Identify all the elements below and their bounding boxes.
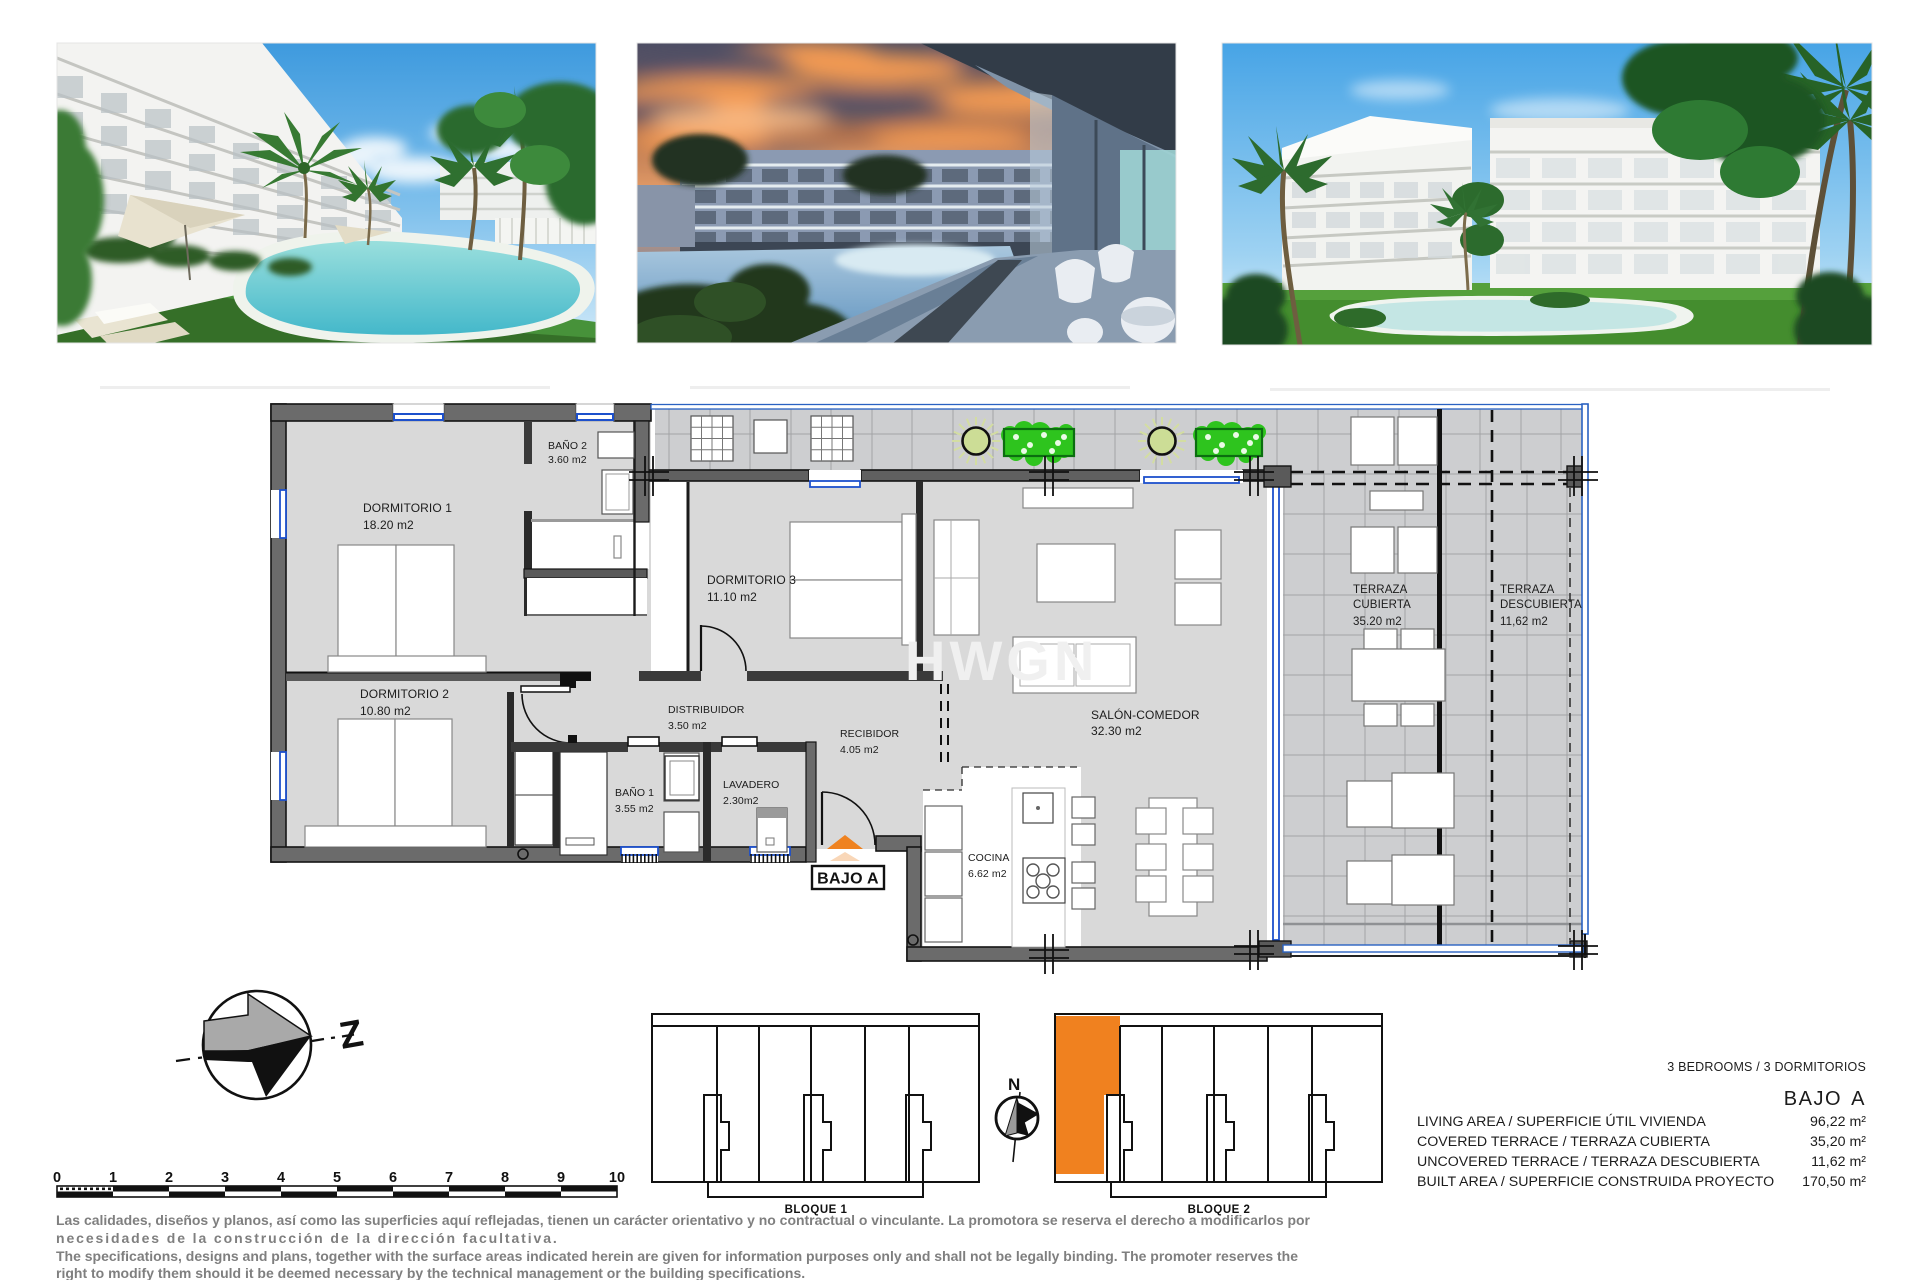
svg-text:The specifications, designs an: The specifications, designs and plans, t… [56,1248,1298,1264]
svg-text:11,62 m²: 11,62 m² [1811,1154,1866,1170]
svg-text:BAÑO 2: BAÑO 2 [548,439,587,452]
svg-text:35.20 m2: 35.20 m2 [1353,616,1402,628]
svg-text:TERRAZA: TERRAZA [1500,584,1555,596]
svg-text:CUBIERTA: CUBIERTA [1353,599,1411,611]
svg-text:LAVADERO: LAVADERO [723,779,779,791]
svg-text:COCINA: COCINA [968,852,1009,864]
svg-text:10.80 m2: 10.80 m2 [360,704,411,718]
svg-text:SALÓN-COMEDOR: SALÓN-COMEDOR [1091,707,1200,722]
svg-text:0: 0 [53,1170,61,1186]
svg-text:32.30 m2: 32.30 m2 [1091,724,1142,738]
svg-text:11.10 m2: 11.10 m2 [707,590,757,604]
svg-text:3.55 m2: 3.55 m2 [615,803,654,815]
svg-text:2.30m2: 2.30m2 [723,795,759,807]
svg-text:Las calidades, diseños y plano: Las calidades, diseños y planos, así com… [56,1212,1311,1228]
svg-text:10: 10 [609,1170,625,1186]
svg-text:N: N [1008,1075,1020,1094]
svg-text:DORMITORIO 1: DORMITORIO 1 [363,501,452,515]
svg-text:necesidades de la construcción: necesidades de la construcción de la dir… [56,1230,559,1246]
svg-text:6: 6 [389,1170,397,1186]
svg-text:3: 3 [221,1170,229,1186]
svg-text:BAJO A: BAJO A [1784,1088,1866,1110]
svg-text:BAÑO 1: BAÑO 1 [615,786,654,799]
svg-text:7: 7 [445,1170,453,1186]
svg-text:9: 9 [557,1170,565,1186]
svg-text:UNCOVERED TERRACE / TERRAZA DE: UNCOVERED TERRACE / TERRAZA DESCUBIERTA [1417,1154,1760,1170]
svg-text:HWGN: HWGN [905,629,1098,692]
svg-text:18.20 m2: 18.20 m2 [363,518,414,532]
svg-text:11,62 m2: 11,62 m2 [1500,616,1548,628]
svg-text:96,22 m²: 96,22 m² [1810,1114,1866,1130]
svg-text:2: 2 [165,1170,173,1186]
svg-text:RECIBIDOR: RECIBIDOR [840,728,900,740]
svg-text:3 BEDROOMS / 3 DORMITORIOS: 3 BEDROOMS / 3 DORMITORIOS [1667,1060,1866,1074]
svg-text:DESCUBIERTA: DESCUBIERTA [1500,599,1582,611]
svg-text:6.62 m2: 6.62 m2 [968,868,1007,880]
svg-text:TERRAZA: TERRAZA [1353,584,1408,596]
svg-text:3.60 m2: 3.60 m2 [548,454,587,466]
svg-text:170,50 m²: 170,50 m² [1802,1174,1866,1190]
svg-text:right to modify them should it: right to modify them should it be deemed… [56,1265,805,1280]
svg-text:4: 4 [277,1170,285,1186]
svg-text:35,20 m²: 35,20 m² [1810,1134,1866,1150]
svg-text:BAJO A: BAJO A [817,871,879,888]
svg-text:DORMITORIO 2: DORMITORIO 2 [360,687,449,701]
svg-text:5: 5 [333,1170,341,1186]
svg-text:1: 1 [109,1170,117,1186]
svg-text:3.50 m2: 3.50 m2 [668,720,707,732]
svg-text:4.05 m2: 4.05 m2 [840,744,879,756]
svg-text:BUILT AREA / SUPERFICIE CONSTR: BUILT AREA / SUPERFICIE CONSTRUIDA PROYE… [1417,1174,1774,1190]
svg-text:DISTRIBUIDOR: DISTRIBUIDOR [668,704,745,716]
svg-text:DORMITORIO 3: DORMITORIO 3 [707,573,796,587]
svg-text:8: 8 [501,1170,509,1186]
svg-text:LIVING AREA / SUPERFICIE ÚTIL: LIVING AREA / SUPERFICIE ÚTIL VIVIENDA [1417,1113,1706,1130]
svg-text:COVERED TERRACE / TERRAZA CUBI: COVERED TERRACE / TERRAZA CUBIERTA [1417,1134,1711,1150]
